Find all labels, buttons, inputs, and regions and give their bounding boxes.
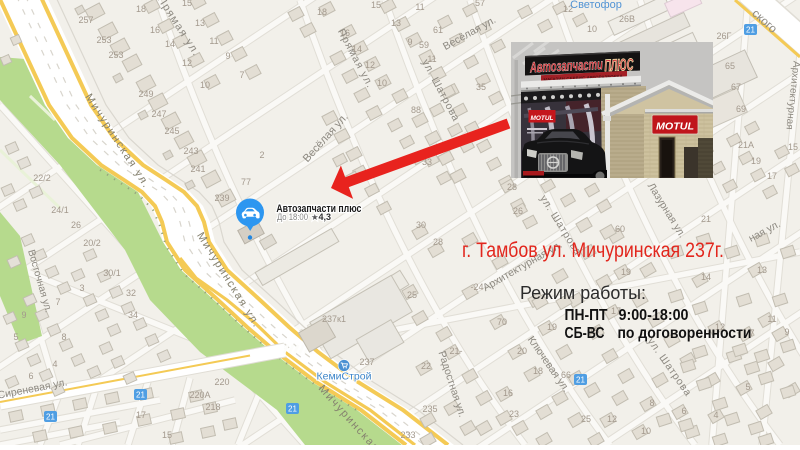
svg-text:20/2: 20/2 — [83, 238, 101, 248]
svg-text:9: 9 — [225, 51, 230, 61]
svg-text:67: 67 — [731, 82, 741, 92]
svg-text:9: 9 — [407, 37, 412, 47]
svg-text:21: 21 — [136, 391, 145, 400]
svg-text:9: 9 — [784, 327, 789, 337]
svg-text:4: 4 — [713, 410, 718, 420]
svg-text:25: 25 — [407, 290, 417, 300]
svg-text:26В: 26В — [619, 14, 635, 24]
svg-text:18: 18 — [533, 366, 543, 376]
svg-text:по договоренности: по договоренности — [618, 325, 752, 342]
svg-text:220А: 220А — [189, 390, 210, 400]
svg-text:237: 237 — [359, 357, 374, 367]
svg-text:г. Тамбов ул. Мичуринская 237г: г. Тамбов ул. Мичуринская 237г. — [462, 238, 724, 262]
svg-text:35: 35 — [476, 82, 486, 92]
svg-text:10: 10 — [641, 426, 651, 436]
svg-text:6: 6 — [28, 371, 33, 381]
svg-text:21: 21 — [46, 413, 55, 422]
svg-text:17: 17 — [136, 410, 146, 420]
svg-text:21-: 21- — [449, 346, 462, 356]
svg-text:5: 5 — [745, 382, 750, 392]
svg-text:34: 34 — [128, 310, 138, 320]
svg-text:59: 59 — [419, 40, 429, 50]
svg-text:28: 28 — [507, 182, 517, 192]
svg-text:15: 15 — [788, 142, 798, 152]
svg-text:MOTUL: MOTUL — [656, 122, 694, 133]
svg-text:26: 26 — [513, 206, 523, 216]
svg-text:8: 8 — [649, 398, 654, 408]
svg-text:26Г: 26Г — [717, 31, 732, 41]
svg-text:21: 21 — [576, 376, 585, 385]
svg-text:11: 11 — [767, 314, 776, 324]
svg-text:19: 19 — [621, 267, 631, 277]
svg-text:69: 69 — [736, 104, 746, 114]
svg-text:233: 233 — [400, 430, 415, 440]
svg-text:3: 3 — [79, 283, 84, 293]
svg-text:19: 19 — [547, 322, 557, 332]
svg-text:60: 60 — [615, 224, 625, 234]
svg-text:253: 253 — [96, 35, 111, 45]
svg-text:11: 11 — [209, 36, 218, 46]
svg-text:245: 245 — [164, 126, 179, 136]
svg-text:70: 70 — [497, 317, 507, 327]
svg-text:237к1: 237к1 — [322, 314, 346, 324]
svg-text:20: 20 — [517, 346, 527, 356]
svg-text:239: 239 — [214, 193, 229, 203]
svg-text:21: 21 — [288, 405, 297, 414]
svg-text:18: 18 — [136, 4, 146, 14]
svg-text:17: 17 — [767, 171, 777, 181]
svg-text:16: 16 — [503, 388, 513, 398]
svg-text:88: 88 — [411, 105, 421, 115]
svg-text:23: 23 — [509, 409, 519, 419]
svg-text:Режим работы:: Режим работы: — [520, 282, 646, 303]
svg-text:До 18:00: До 18:00 — [277, 212, 308, 222]
svg-text:6: 6 — [681, 406, 686, 416]
svg-text:26: 26 — [71, 220, 81, 230]
svg-text:220: 220 — [214, 377, 229, 387]
svg-text:10: 10 — [587, 24, 597, 34]
svg-text:243: 243 — [183, 146, 198, 156]
svg-text:MOTUL: MOTUL — [531, 115, 554, 122]
svg-text:249: 249 — [138, 89, 153, 99]
svg-text:4,3: 4,3 — [319, 212, 332, 222]
svg-text:22: 22 — [421, 361, 431, 371]
svg-text:4: 4 — [52, 359, 57, 369]
svg-text:12: 12 — [182, 58, 192, 68]
svg-text:11: 11 — [415, 2, 424, 12]
svg-text:9: 9 — [21, 310, 26, 320]
svg-text:13: 13 — [757, 265, 767, 275]
svg-text:257: 257 — [78, 15, 93, 25]
svg-text:15: 15 — [162, 430, 172, 440]
svg-text:7: 7 — [55, 297, 60, 307]
svg-text:30/1: 30/1 — [103, 268, 121, 278]
svg-text:7: 7 — [239, 70, 244, 80]
svg-text:247: 247 — [151, 109, 166, 119]
svg-text:22/2: 22/2 — [33, 173, 51, 183]
svg-text:13: 13 — [391, 18, 401, 28]
svg-text:КемиСтрой: КемиСтрой — [317, 371, 372, 383]
svg-text:13: 13 — [195, 18, 205, 28]
svg-text:30: 30 — [416, 220, 426, 230]
svg-text:8: 8 — [61, 332, 66, 342]
svg-text:25: 25 — [581, 414, 591, 424]
svg-text:15: 15 — [182, 0, 192, 8]
svg-text:24/1: 24/1 — [51, 205, 69, 215]
svg-text:19: 19 — [751, 156, 761, 166]
svg-text:18: 18 — [317, 7, 327, 17]
svg-text:57: 57 — [475, 0, 485, 8]
svg-text:253: 253 — [108, 50, 123, 60]
svg-text:14: 14 — [165, 39, 175, 49]
svg-text:28: 28 — [433, 237, 443, 247]
svg-text:77: 77 — [241, 177, 251, 187]
svg-text:218: 218 — [205, 402, 220, 412]
svg-text:65: 65 — [725, 61, 735, 71]
svg-text:14: 14 — [701, 272, 711, 282]
svg-text:ПН-ПТ: ПН-ПТ — [565, 307, 608, 324]
svg-text:12: 12 — [607, 414, 617, 424]
svg-text:2: 2 — [259, 150, 264, 160]
svg-text:21: 21 — [746, 26, 755, 35]
svg-text:15: 15 — [371, 0, 381, 10]
svg-text:21А: 21А — [738, 140, 754, 150]
svg-text:241: 241 — [190, 164, 205, 174]
svg-text:32: 32 — [126, 288, 136, 298]
svg-text:Светофор: Светофор — [570, 0, 622, 11]
svg-text:10: 10 — [377, 78, 387, 88]
svg-text:21: 21 — [701, 214, 711, 224]
svg-text:9:00-18:00: 9:00-18:00 — [619, 307, 689, 324]
svg-text:10: 10 — [200, 80, 210, 90]
svg-text:СБ-ВС: СБ-ВС — [565, 325, 605, 342]
svg-text:235: 235 — [422, 404, 437, 414]
svg-text:61: 61 — [433, 25, 443, 35]
svg-text:16: 16 — [150, 25, 160, 35]
svg-text:5: 5 — [13, 332, 18, 342]
